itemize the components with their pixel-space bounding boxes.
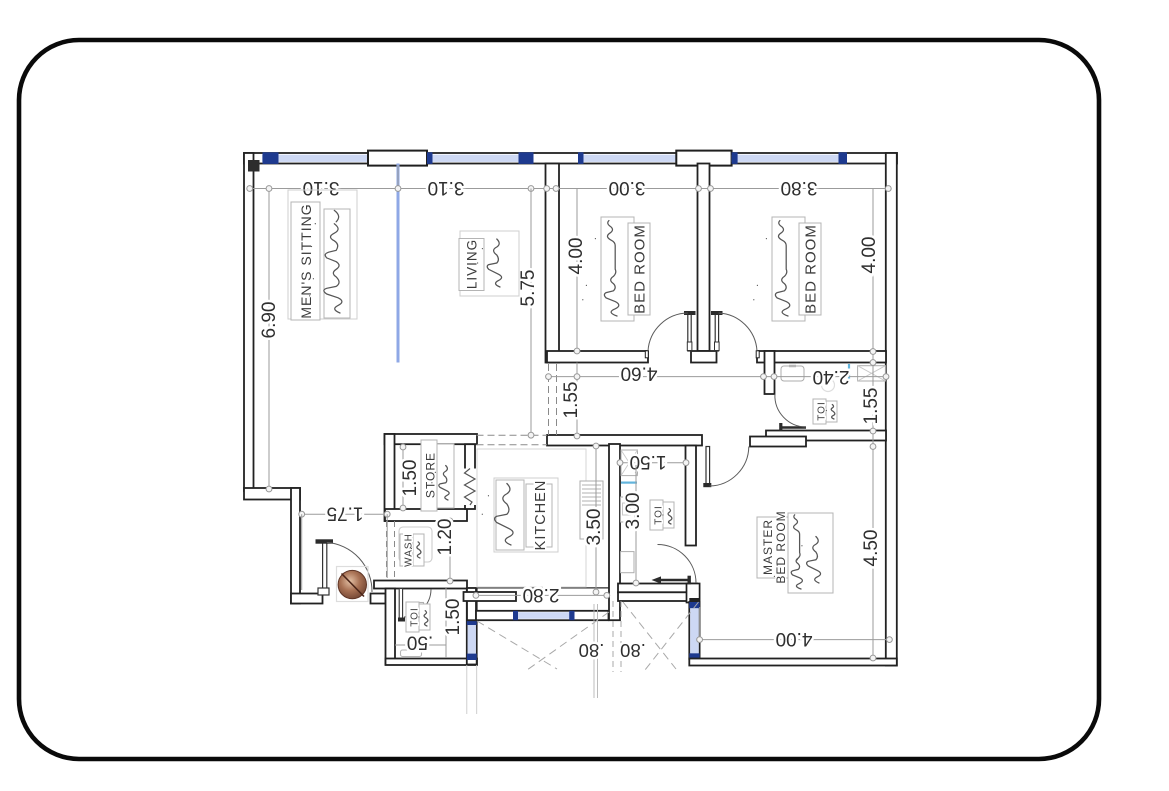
svg-text:BED ROOM: BED ROOM	[774, 510, 788, 583]
svg-text:1.50: 1.50	[400, 460, 421, 497]
svg-text:1.50: 1.50	[630, 451, 667, 472]
svg-text:5.75: 5.75	[518, 270, 539, 307]
svg-text:3.10: 3.10	[303, 177, 340, 198]
svg-text:LIVING: LIVING	[465, 239, 480, 289]
svg-text:2.40: 2.40	[813, 366, 850, 387]
svg-text:3.50: 3.50	[584, 509, 605, 546]
svg-text:3.00: 3.00	[623, 493, 644, 530]
svg-text:6.90: 6.90	[259, 302, 280, 339]
svg-text:1.75: 1.75	[327, 503, 364, 524]
svg-text:4.60: 4.60	[621, 363, 658, 384]
svg-text:MASTER: MASTER	[761, 519, 775, 575]
svg-text:3.10: 3.10	[428, 177, 465, 198]
svg-text:4.00: 4.00	[776, 628, 813, 649]
svg-text:.80: .80	[620, 640, 646, 661]
svg-text:TOI: TOI	[817, 401, 828, 420]
svg-text:.50: .50	[407, 632, 433, 653]
svg-text:BED ROOM: BED ROOM	[803, 224, 820, 314]
svg-text:1.20: 1.20	[435, 519, 456, 556]
svg-text:.80: .80	[579, 640, 605, 661]
svg-text:WASH: WASH	[404, 533, 415, 567]
svg-text:3.00: 3.00	[609, 177, 646, 198]
svg-text:4.00: 4.00	[859, 237, 880, 274]
svg-text:BED ROOM: BED ROOM	[632, 224, 649, 314]
svg-text:2.80: 2.80	[523, 584, 560, 605]
svg-text:4.50: 4.50	[861, 530, 882, 567]
svg-text:MEN'S SITTING: MEN'S SITTING	[298, 203, 314, 318]
svg-text:4.00: 4.00	[566, 238, 587, 275]
svg-text:1.55: 1.55	[861, 388, 882, 425]
svg-text:3.80: 3.80	[781, 177, 818, 198]
svg-text:STORE: STORE	[424, 452, 438, 498]
svg-text:1.55: 1.55	[561, 382, 582, 419]
svg-text:1.50: 1.50	[443, 599, 464, 636]
svg-text:KITCHEN: KITCHEN	[533, 480, 549, 551]
